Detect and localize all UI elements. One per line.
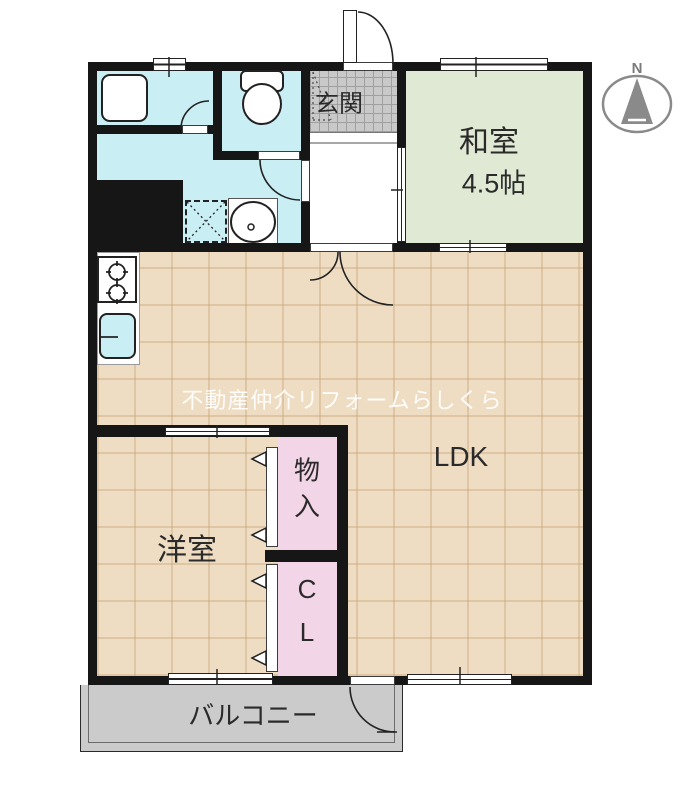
hallway-floor [310,133,397,243]
yoshitsu-sliding-door [165,427,270,436]
closet-lower-label: C L [298,568,317,654]
toilet-door-sill [258,151,300,160]
washitsu-sliding-door-south [439,243,507,252]
closet-upper-label: 物 入 [294,453,320,526]
compass-north-label: N [632,60,643,77]
wall-right [583,62,592,685]
wall-toilet-south-l [213,151,258,160]
floor-plan: N 玄関 和室 4.5帖 不動産仲介リフォームらしくら LDK 洋室 物 入 C… [0,0,682,800]
wall-hall-west-upper [301,62,310,151]
wall-toilet-south-r [300,151,310,160]
wall-washitsu-south-r [507,243,592,252]
yoshitsu-label: 洋室 [157,525,217,569]
washitsu-label: 和室 [459,117,519,161]
watermark-text: 不動産仲介リフォームらしくら [181,383,502,415]
closet-upper-door [266,447,278,547]
washroom-door-sill [301,160,310,202]
wall-bottom [88,676,592,685]
entrance-door-leaf [343,10,357,63]
entrance-door-arc [358,12,393,64]
closet-lower-char1: C [298,568,317,611]
wall-washroom-south [88,243,310,252]
ldk-label: LDK [434,441,488,473]
washitsu-size-label: 4.5帖 [462,162,527,201]
balcony-label: バルコニー [188,696,317,733]
wall-left [88,62,97,685]
genkan-label: 玄関 [315,84,363,119]
ldk-window [407,674,512,685]
entrance-door-sill [343,62,393,71]
ldk-double-door-sill [310,243,393,252]
washing-machine-space [185,200,227,243]
gas-stove [97,256,137,303]
washitsu-sliding-door-west [397,147,406,242]
yoshitsu-window [168,673,273,685]
bath-window [153,58,186,71]
balcony-door-sill [350,676,395,685]
wash-basin-counter [228,198,278,247]
compass-needle-icon [621,78,653,124]
closet-upper-char2: 入 [294,489,320,525]
bath-door-sill [182,125,208,134]
wall-washitsu-west-upper [397,62,406,147]
pipe-space [88,180,183,243]
north-compass: N [603,60,671,132]
wall-bath-toilet [213,62,222,160]
wall-closet-divider [265,550,348,562]
washitsu-window [440,58,548,71]
closet-upper-char1: 物 [294,453,320,489]
bathtub [101,74,148,122]
kitchen-sink [99,313,136,359]
closet-lower-char2: L [300,611,314,654]
closet-lower-door [266,564,278,672]
compass-circle-icon [603,76,671,132]
wall-washitsu-west-lower [397,242,406,252]
